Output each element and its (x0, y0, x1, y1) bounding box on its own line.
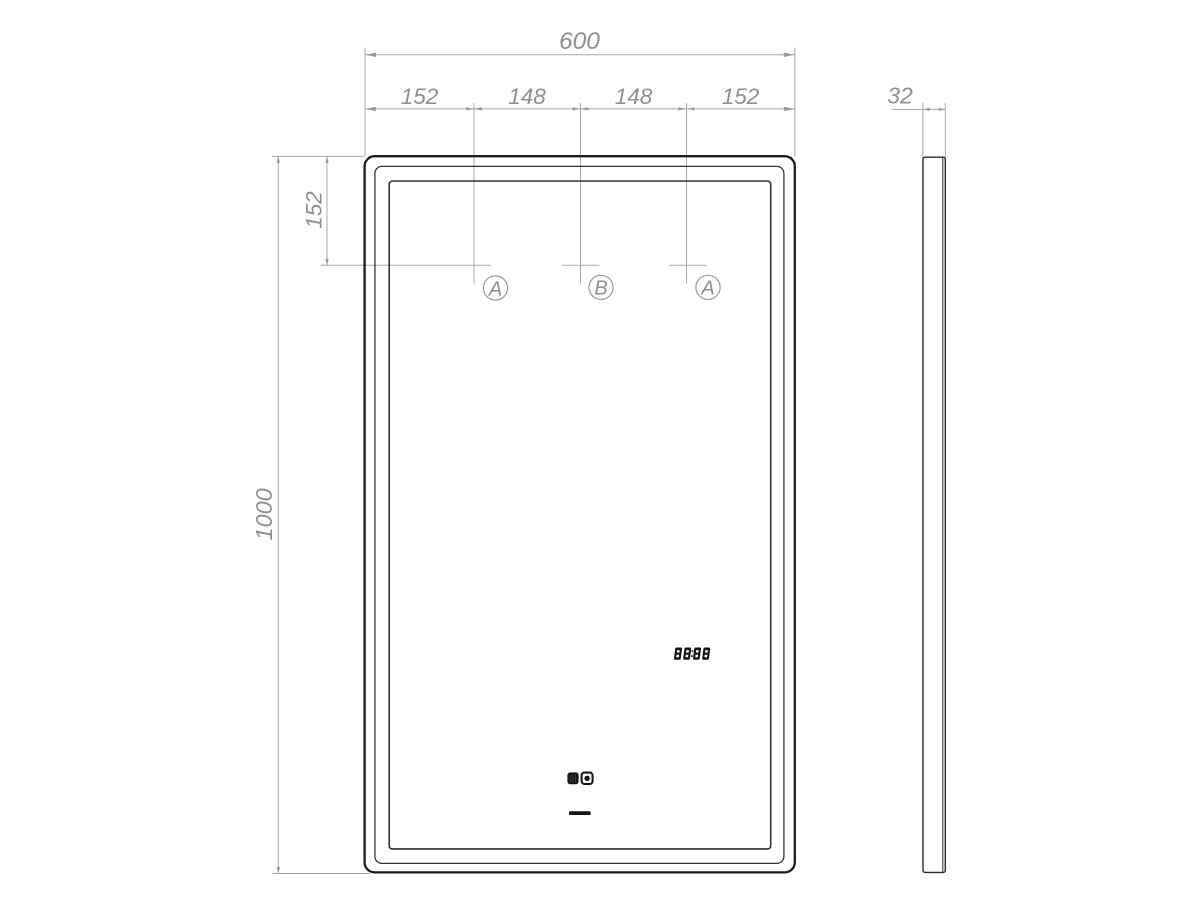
svg-text:148: 148 (508, 84, 546, 109)
svg-text:1000: 1000 (251, 488, 277, 540)
svg-text:A: A (700, 278, 714, 300)
svg-text:32: 32 (887, 82, 913, 108)
svg-text:152: 152 (301, 191, 326, 229)
svg-text:152: 152 (722, 84, 760, 109)
svg-text:A: A (488, 278, 502, 300)
svg-text:152: 152 (401, 84, 439, 109)
svg-text:148: 148 (615, 84, 653, 109)
svg-text:600: 600 (559, 28, 600, 55)
svg-text:B: B (594, 278, 607, 300)
